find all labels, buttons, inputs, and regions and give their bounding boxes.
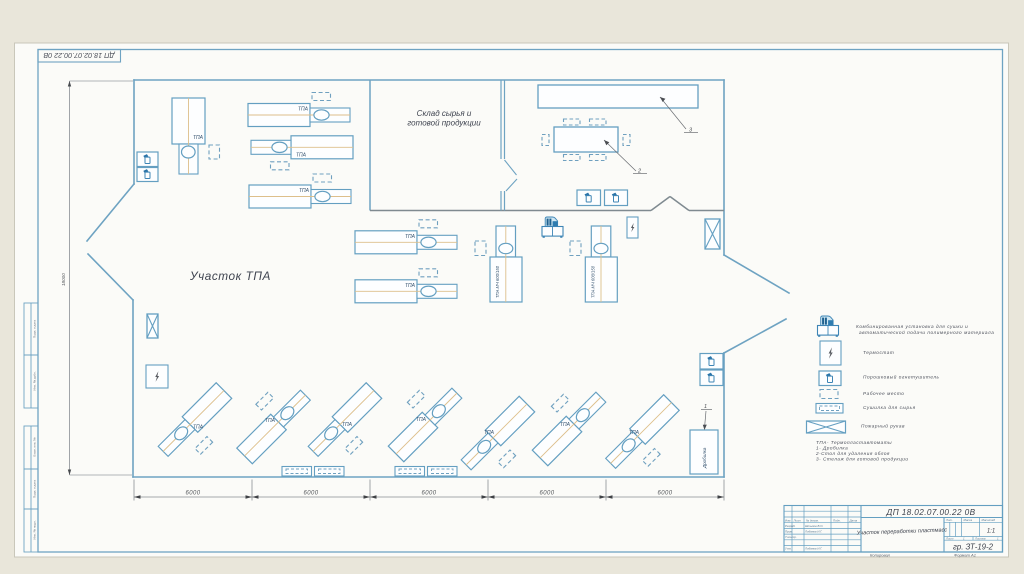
svg-text:Порошковый огнетушитель: Порошковый огнетушитель: [863, 374, 940, 380]
svg-text:ТПА: ТПА: [560, 422, 571, 428]
svg-text:Штыков В.О.: Штыков В.О.: [805, 524, 823, 528]
svg-text:ТПА МЧ 600/150: ТПА МЧ 600/150: [590, 265, 595, 298]
svg-text:2: 2: [637, 169, 641, 175]
svg-text:Подп. и дата: Подп. и дата: [33, 480, 37, 499]
svg-text:готовой продукции: готовой продукции: [407, 119, 481, 128]
svg-text:Дробилка: Дробилка: [702, 447, 707, 469]
svg-text:ТПА МЧ 600/150: ТПА МЧ 600/150: [495, 265, 500, 298]
svg-text:Инв. № подл.: Инв. № подл.: [33, 520, 37, 539]
svg-text:ДП 18.02.07.00.22 0В: ДП 18.02.07.00.22 0В: [886, 508, 976, 517]
svg-text:ТПА: ТПА: [296, 153, 307, 159]
svg-text:Изм.: Изм.: [785, 518, 791, 522]
svg-text:Лит.: Лит.: [945, 518, 953, 522]
svg-text:Инв. № дубл.: Инв. № дубл.: [33, 371, 37, 390]
svg-text:Лист: Лист: [945, 537, 954, 541]
svg-text:2-Стол для удаления облоя: 2-Стол для удаления облоя: [815, 451, 890, 456]
svg-text:Лист: Лист: [793, 518, 802, 522]
svg-text:ТПА: ТПА: [298, 107, 309, 113]
svg-text:ТПА: ТПА: [342, 422, 353, 428]
svg-text:Взам. инв. №: Взам. инв. №: [33, 437, 37, 457]
svg-text:6000: 6000: [304, 491, 319, 497]
svg-text:Комбинированная установка для: Комбинированная установка для сушки и: [856, 324, 968, 329]
svg-text:Пров.: Пров.: [785, 529, 793, 533]
svg-text:Пожарный рукав: Пожарный рукав: [861, 423, 905, 429]
svg-text:ТПА: ТПА: [193, 135, 204, 141]
svg-text:3- Стелаж для готовой продукц: 3- Стелаж для готовой продукции: [816, 456, 909, 462]
svg-text:Копировал: Копировал: [870, 553, 891, 558]
svg-text:гр. ЗТ-19-2: гр. ЗТ-19-2: [953, 543, 994, 552]
svg-text:ТПА: ТПА: [193, 425, 204, 431]
svg-text:6000: 6000: [658, 491, 673, 497]
svg-text:ТПА: ТПА: [405, 283, 416, 289]
svg-text:ТПА- Термопластавтоматы: ТПА- Термопластавтоматы: [816, 440, 892, 445]
svg-text:Масштаб: Масштаб: [982, 518, 996, 522]
svg-text:ДП 18.02.07.00.22 0В: ДП 18.02.07.00.22 0В: [43, 51, 115, 60]
svg-text:ТПА: ТПА: [484, 430, 495, 436]
svg-text:ТПА: ТПА: [405, 234, 416, 240]
svg-text:18000: 18000: [61, 273, 66, 286]
svg-text:1: 1: [704, 404, 707, 410]
svg-text:6000: 6000: [540, 491, 555, 497]
svg-text:Масса: Масса: [964, 518, 973, 522]
svg-text:ТПА: ТПА: [299, 188, 310, 194]
svg-text:Лобанов И.Г.: Лобанов И.Г.: [804, 546, 822, 550]
svg-text:Склад сырья и: Склад сырья и: [417, 109, 472, 118]
svg-text:автоматической подачи полимерн: автоматической подачи полимерного матери…: [859, 329, 994, 335]
svg-text:Лобанов И.Г.: Лобанов И.Г.: [804, 529, 822, 533]
svg-text:ТПА: ТПА: [629, 430, 640, 436]
svg-text:6000: 6000: [422, 491, 437, 497]
svg-text:1- Дробилка: 1- Дробилка: [816, 446, 848, 451]
svg-text:ТПА: ТПА: [416, 417, 427, 423]
svg-text:Термостат: Термостат: [863, 350, 894, 355]
svg-text:1:1: 1:1: [987, 529, 995, 535]
svg-text:Т.контр.: Т.контр.: [785, 535, 797, 539]
svg-text:Дата: Дата: [849, 518, 858, 522]
svg-text:Формат А1: Формат А1: [954, 553, 976, 558]
svg-text:Подп. и дата: Подп. и дата: [33, 320, 37, 339]
svg-text:6000: 6000: [186, 491, 201, 497]
svg-text:Участок ТПА: Участок ТПА: [189, 269, 271, 283]
svg-text:Листов: Листов: [974, 537, 986, 541]
svg-text:ТПА: ТПА: [265, 418, 276, 424]
svg-text:Подп.: Подп.: [833, 518, 841, 522]
svg-text:Сушилка для сырья: Сушилка для сырья: [863, 405, 916, 410]
svg-text:№ докум.: № докум.: [806, 518, 819, 522]
svg-text:Рабочее место: Рабочее место: [863, 391, 904, 396]
svg-text:Разраб.: Разраб.: [785, 524, 796, 528]
svg-text:Утв.: Утв.: [785, 546, 792, 550]
